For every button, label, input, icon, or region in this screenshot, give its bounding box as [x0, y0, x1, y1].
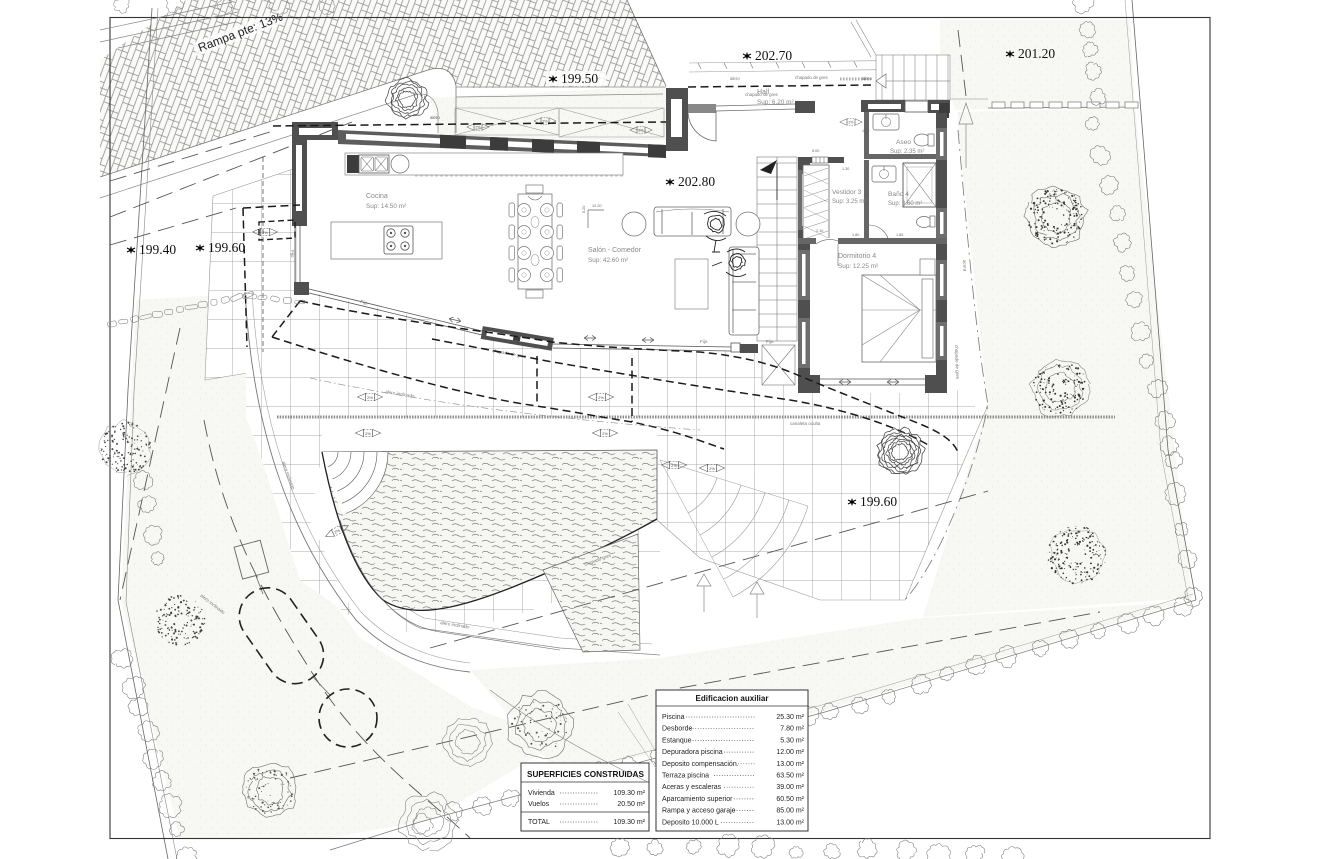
svg-text:Deposito compensación.: Deposito compensación.	[662, 761, 739, 768]
svg-text:Deposito 10.000 L: Deposito 10.000 L	[662, 819, 719, 826]
svg-text:Aseo: Aseo	[896, 139, 911, 146]
svg-text:Depuradora piscina: Depuradora piscina	[662, 749, 723, 756]
svg-text:Sup: 3.60 m²: Sup: 3.60 m²	[888, 201, 922, 207]
svg-text:60.50 m²: 60.50 m²	[776, 796, 804, 803]
svg-text:1.80: 1.80	[852, 233, 859, 237]
svg-text:Fijo: Fijo	[766, 339, 774, 344]
svg-text:2%: 2%	[598, 395, 604, 400]
svg-text:SUPERFICIES CONSTRUIDAS: SUPERFICIES CONSTRUIDAS	[527, 770, 644, 779]
svg-text:2.10: 2.10	[816, 229, 823, 233]
svg-text:201.20: 201.20	[1018, 46, 1055, 61]
svg-text:12.00 m²: 12.00 m²	[776, 749, 804, 756]
svg-text:TOTAL: TOTAL	[528, 819, 550, 826]
svg-text:2%: 2%	[638, 129, 644, 133]
svg-text:1.80: 1.80	[896, 233, 903, 237]
svg-text:Rampa y acceso garaje: Rampa y acceso garaje	[662, 808, 736, 815]
svg-text:Aparcamiento superior: Aparcamiento superior	[662, 796, 733, 803]
svg-text:2%: 2%	[671, 463, 677, 468]
svg-text:199.40: 199.40	[139, 242, 176, 257]
svg-text:Cocina: Cocina	[366, 193, 388, 200]
svg-text:chapado de gres: chapado de gres	[795, 75, 829, 80]
svg-text:Aceras y escaleras: Aceras y escaleras	[662, 784, 722, 791]
svg-text:Sup: 2.35 m²: Sup: 2.35 m²	[890, 149, 924, 155]
svg-text:5.20: 5.20	[582, 206, 586, 213]
svg-text:Sup: 14.50 m²: Sup: 14.50 m²	[366, 203, 406, 210]
svg-text:202.70: 202.70	[755, 48, 792, 63]
svg-text:199.60: 199.60	[208, 240, 245, 255]
svg-text:2%: 2%	[365, 431, 371, 436]
svg-text:Desborde: Desborde	[662, 726, 692, 733]
svg-text:acera: acera	[962, 260, 968, 272]
svg-text:5.30 m²: 5.30 m²	[780, 737, 804, 744]
svg-text:13.00 m²: 13.00 m²	[776, 819, 804, 826]
svg-text:7.80 m²: 7.80 m²	[780, 726, 804, 733]
svg-text:1.30: 1.30	[842, 167, 849, 171]
svg-text:Fijo: Fijo	[700, 339, 708, 344]
svg-text:12.20: 12.20	[592, 204, 602, 208]
svg-text:5.00: 5.00	[812, 149, 819, 153]
svg-text:2%: 2%	[367, 395, 373, 400]
svg-text:Baño 4: Baño 4	[888, 191, 909, 198]
svg-text:Sup: 12.25 m²: Sup: 12.25 m²	[838, 263, 878, 270]
svg-text:Piscina: Piscina	[662, 714, 685, 721]
svg-text:2%: 2%	[848, 121, 854, 125]
svg-text:25.30 m²: 25.30 m²	[776, 714, 804, 721]
svg-text:109.30 m²: 109.30 m²	[613, 819, 645, 826]
svg-text:Salón - Comedor: Salón - Comedor	[588, 247, 642, 254]
svg-text:109.30 m²: 109.30 m²	[613, 790, 645, 797]
svg-text:1.80: 1.80	[862, 129, 869, 133]
svg-text:13.00 m²: 13.00 m²	[776, 761, 804, 768]
svg-text:Sup: 3.25 m²: Sup: 3.25 m²	[832, 199, 866, 205]
svg-text:199.60: 199.60	[860, 494, 897, 509]
svg-text:Edificacion auxiliar: Edificacion auxiliar	[696, 694, 769, 703]
svg-text:2%: 2%	[709, 466, 715, 471]
svg-text:202.80: 202.80	[678, 174, 715, 189]
svg-text:alero: alero	[430, 115, 440, 120]
svg-text:Terraza piscina: Terraza piscina	[662, 773, 709, 780]
svg-text:20.50 m²: 20.50 m²	[617, 801, 645, 808]
svg-text:Vestidor 3: Vestidor 3	[832, 189, 862, 196]
svg-text:canaleta oculta: canaleta oculta	[790, 421, 821, 426]
svg-text:2%: 2%	[602, 431, 608, 436]
svg-text:39.00 m²: 39.00 m²	[776, 784, 804, 791]
svg-text:Sup: 6.20 m²: Sup: 6.20 m²	[757, 99, 794, 106]
svg-text:Dormitorio 4: Dormitorio 4	[838, 253, 876, 260]
svg-text:Vuelos: Vuelos	[528, 801, 550, 808]
svg-text:alero: alero	[730, 76, 740, 81]
svg-text:Vivienda: Vivienda	[528, 790, 555, 797]
svg-text:199.50: 199.50	[561, 71, 598, 86]
svg-text:85.00 m²: 85.00 m²	[776, 808, 804, 815]
svg-text:Fijo: Fijo	[290, 250, 295, 258]
svg-text:Sup: 42.60 m²: Sup: 42.60 m²	[588, 257, 628, 264]
svg-text:Hall: Hall	[757, 89, 770, 96]
svg-text:2%: 2%	[475, 126, 481, 130]
svg-text:63.50 m²: 63.50 m²	[776, 773, 804, 780]
svg-text:alero: alero	[862, 76, 872, 81]
svg-text:Estanque: Estanque	[662, 737, 692, 744]
